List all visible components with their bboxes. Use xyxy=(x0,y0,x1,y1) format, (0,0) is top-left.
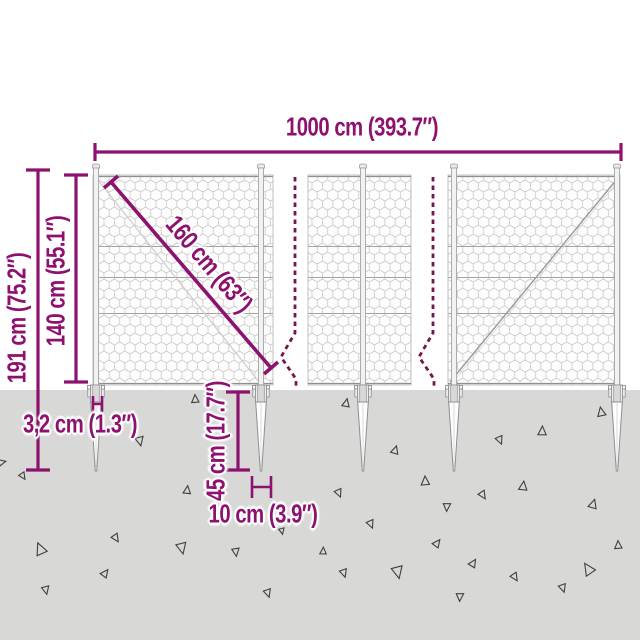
mesh-panel-right xyxy=(448,175,620,385)
post-width-label: 3,2 cm (1.3″) xyxy=(23,409,137,440)
fence-diagram-graphic xyxy=(0,0,640,640)
total-height-label: 191 cm (75.2″) xyxy=(2,253,33,384)
spike-width-label: 10 cm (3.9″) xyxy=(209,499,318,530)
break-line-right xyxy=(419,177,434,386)
total-width-label: 1000 cm (393.7″) xyxy=(286,112,438,143)
break-line-left xyxy=(281,177,296,386)
mesh-panel-middle xyxy=(308,175,411,385)
spike-depth-label: 45 cm (17.7″) xyxy=(201,381,232,501)
mesh-panel-left xyxy=(93,175,273,385)
dim-line-total-width xyxy=(95,143,621,161)
fence-dimension-diagram: 1000 cm (393.7″) 191 cm (75.2″) 140 cm (… xyxy=(0,0,640,640)
fence-height-label: 140 cm (55.1″) xyxy=(41,216,72,347)
